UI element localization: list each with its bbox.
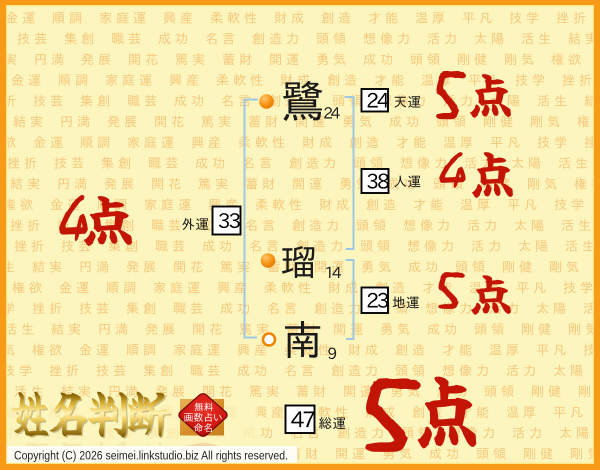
svg-text:Copyright (C) 2026 seimei.link: Copyright (C) 2026 seimei.linkstudio.biz… (14, 449, 288, 463)
